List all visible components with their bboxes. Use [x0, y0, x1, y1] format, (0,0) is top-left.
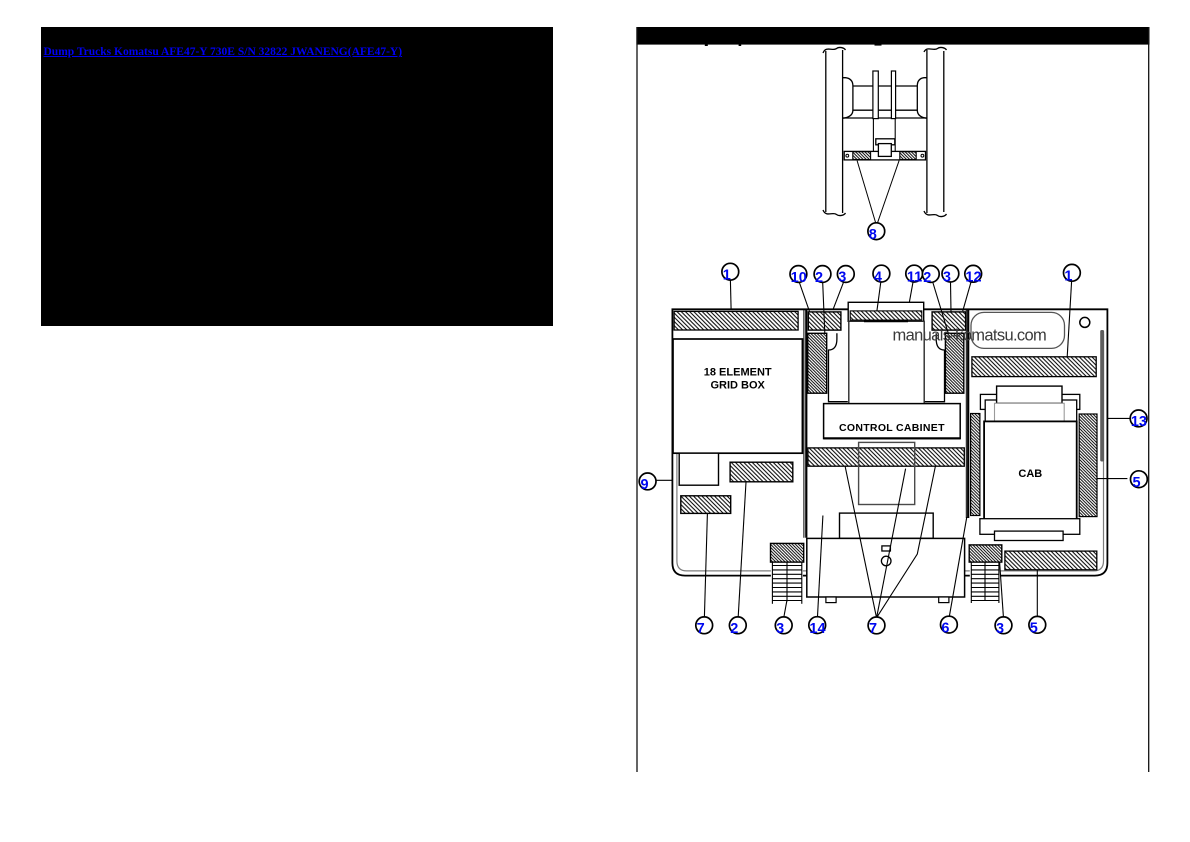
svg-text:manuals-komatsu.com: manuals-komatsu.com	[893, 326, 1047, 344]
svg-text:5: 5	[1133, 475, 1141, 491]
svg-text:1: 1	[1064, 269, 1072, 285]
svg-text:6: 6	[941, 620, 949, 636]
svg-text:5: 5	[1030, 621, 1038, 637]
svg-text:13: 13	[1131, 414, 1147, 430]
svg-text:14: 14	[809, 621, 825, 637]
svg-text:CAB: CAB	[1018, 468, 1042, 480]
svg-text:1: 1	[723, 268, 731, 284]
svg-text:3: 3	[838, 269, 846, 285]
svg-text:3: 3	[776, 621, 784, 637]
svg-text:3: 3	[996, 621, 1004, 637]
svg-text:8: 8	[869, 227, 877, 243]
svg-text:2: 2	[923, 270, 931, 286]
svg-text:7: 7	[697, 621, 705, 637]
svg-text:10: 10	[791, 270, 807, 286]
svg-text:4: 4	[874, 269, 882, 285]
svg-text:GRID BOX: GRID BOX	[710, 379, 765, 391]
svg-text:CONTROL CABINET: CONTROL CABINET	[839, 422, 945, 434]
svg-text:2: 2	[815, 270, 823, 286]
svg-text:9: 9	[641, 477, 649, 493]
svg-text:2: 2	[730, 621, 738, 637]
svg-text:3: 3	[943, 269, 951, 285]
svg-text:18 ELEMENT: 18 ELEMENT	[704, 367, 772, 379]
svg-text:7: 7	[869, 621, 877, 637]
svg-text:11: 11	[907, 269, 922, 285]
svg-text:12: 12	[965, 270, 981, 286]
